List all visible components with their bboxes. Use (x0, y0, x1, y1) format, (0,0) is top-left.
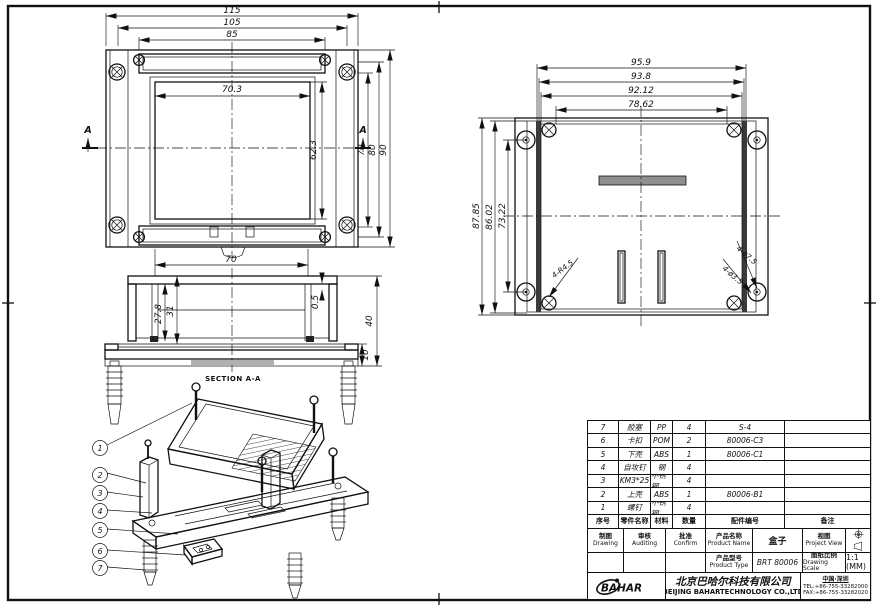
section-label: SECTION A-A (205, 375, 261, 383)
balloon-5: 5 (97, 526, 102, 535)
bom-cell: 不锈钢 (651, 502, 673, 515)
bom-cell (785, 475, 870, 488)
bom-cell: ABS (651, 488, 673, 501)
leader-corner-radius: 4-R4.5 (550, 258, 575, 280)
dim-w2: 93.8 (631, 72, 651, 82)
section-view: 27.8 31 0.5 40 10 SECTION A-A (105, 268, 382, 424)
bom-cell: PP (651, 421, 673, 434)
bom-cell: 4 (673, 502, 706, 515)
bom-cell (706, 461, 785, 474)
balloon-7: 7 (97, 564, 103, 573)
confirm-label: 批准 Confirm (666, 529, 706, 553)
drawing-sheet: A A 115 105 85 70.3 62.3 70 80 90 70 (0, 0, 878, 606)
clip-part (184, 539, 222, 564)
product-name-value: 盒子 (753, 529, 803, 553)
drawing-signature-cell (588, 553, 624, 573)
bom-cell (785, 502, 870, 515)
bom-cell: 卡扣 (619, 434, 651, 447)
screw-icon (727, 296, 741, 310)
bom-cell: 胶塞 (619, 421, 651, 434)
bom-cell: 自攻钉 (619, 461, 651, 474)
project-view-label: 视图 Project View (803, 529, 846, 553)
titleblock-row-2: 产品型号 Product Type BRT 80006 图纸比例 Drawing… (588, 553, 870, 573)
screw-icon (727, 123, 741, 137)
bom-cell: 4 (673, 461, 706, 474)
screw-icon (339, 64, 355, 80)
screw-icon (339, 217, 355, 233)
bom-cell: 螺钉 (619, 502, 651, 515)
wall-anchor-icon (106, 361, 123, 424)
bom-header: 数量 (673, 515, 706, 528)
dim-total-height: 40 (365, 315, 375, 327)
dim-overall-width: 115 (223, 6, 240, 16)
bom-cell: 2 (673, 434, 706, 447)
bom-cell: 不锈钢 (651, 475, 673, 488)
wall-anchor-icon (287, 553, 303, 598)
dim-inner-width: 70.3 (222, 85, 242, 95)
auditing-signature-cell (624, 553, 666, 573)
dim-gap: 0.5 (311, 295, 321, 310)
balloon-callouts: 1 2 3 4 5 6 7 (93, 403, 193, 576)
bom-cell: 4 (673, 475, 706, 488)
base-plate (133, 477, 368, 549)
cone-projection-icon (851, 541, 865, 552)
bom-header: 配件编号 (706, 515, 785, 528)
screw-icon (145, 440, 151, 459)
dim-bottom-width: 70 (225, 255, 237, 265)
bom-cell (785, 461, 870, 474)
dim-w4: 78.62 (628, 100, 654, 110)
corner-post (140, 457, 158, 518)
screw-icon (109, 217, 125, 233)
section-letter-right: A (358, 125, 366, 136)
section-letter-left: A (83, 125, 91, 136)
bom-cell: 1 (588, 502, 619, 515)
confirm-signature-cell (666, 553, 706, 573)
screw-icon (109, 64, 125, 80)
boss-icon (748, 131, 766, 149)
bom-cell: 80006-C1 (706, 448, 785, 461)
dim-base-height: 10 (361, 349, 371, 361)
dim-lid-width: 105 (223, 18, 240, 28)
dim-inner-height: 62.3 (309, 140, 319, 160)
balloon-1: 1 (97, 444, 102, 453)
bom-cell: 7 (588, 421, 619, 434)
product-name-label: 产品名称 Product Name (706, 529, 753, 553)
top-view: A A 115 105 85 70.3 62.3 70 80 90 70 (82, 6, 395, 276)
product-type-label: 产品型号 Product Type (706, 553, 753, 573)
bom-cell: 80006-C3 (706, 434, 785, 447)
balloon-3: 3 (97, 489, 102, 498)
exploded-view: 1 2 3 4 5 6 7 (93, 383, 369, 598)
dim-depth1: 27.8 (154, 304, 164, 324)
bom-cell: 80006-B1 (706, 488, 785, 501)
balloon-4: 4 (97, 507, 102, 516)
bom-cell: 4 (588, 461, 619, 474)
drawing-label: 制图 Drawing (588, 529, 624, 553)
vent-slot (618, 251, 625, 303)
bom-cell: ABS (651, 448, 673, 461)
bom-cell: 上壳 (619, 488, 651, 501)
dim-slot-width: 85 (226, 30, 238, 40)
product-type-value: BRT 80006 (753, 553, 803, 573)
bom-table: 7 胶塞 PP 4 S-4 6 卡扣 POM 2 80006-C3 5 下壳 A… (588, 421, 870, 529)
bom-cell: 6 (588, 434, 619, 447)
vent-slot (599, 176, 686, 185)
dim-h3: 73.22 (498, 203, 508, 229)
drawing-scale-value: 1:1 (MM) (846, 553, 870, 573)
bom-header: 零件名称 (619, 515, 651, 528)
bom-cell: 1 (673, 448, 706, 461)
bottom-view: 95.9 93.8 92.12 78.62 87.85 86.02 73.22 … (472, 58, 782, 327)
bom-cell: 3 (588, 475, 619, 488)
bom-cell: KM3*25 (619, 475, 651, 488)
balloon-6: 6 (97, 547, 102, 556)
dim-height-90: 90 (379, 144, 389, 156)
dim-h2: 86.02 (485, 204, 495, 230)
company-contact: 中国·深圳 TEL:+86-755-33282000 FAX:+86-755-3… (801, 573, 870, 601)
projection-symbols (846, 529, 870, 553)
bom-cell (785, 434, 870, 447)
company-name: 北京巴哈尔科技有限公司 BEIJING BAHARTECHNOLOGY CO.,… (666, 573, 801, 601)
auditing-label: 审核 Auditing (624, 529, 666, 553)
upper-shell (168, 399, 324, 489)
bom-header: 材料 (651, 515, 673, 528)
svg-text:BAHAR: BAHAR (601, 582, 642, 594)
company-logo: BAHAR (588, 573, 666, 601)
dim-depth2: 31 (166, 305, 176, 316)
screw-icon (329, 448, 337, 483)
screw-icon (542, 296, 556, 310)
bom-cell (785, 421, 870, 434)
balloon-2: 2 (97, 471, 102, 480)
bom-header: 序号 (588, 515, 619, 528)
third-angle-projection-icon (851, 529, 866, 540)
bom-cell: 2 (588, 488, 619, 501)
leader-hole-dia: 4-ø3.5 (721, 264, 745, 287)
title-block-and-bom: 7 胶塞 PP 4 S-4 6 卡扣 POM 2 80006-C3 5 下壳 A… (587, 420, 871, 600)
bahar-logo-icon: BAHAR (594, 576, 660, 598)
wall-anchor-icon (330, 498, 346, 540)
boss-icon (748, 283, 766, 301)
dim-height-70: 70 (357, 144, 367, 156)
company-row: BAHAR 北京巴哈尔科技有限公司 BEIJING BAHARTECHNOLOG… (588, 573, 870, 601)
screw-icon (542, 123, 556, 137)
screw-icon (310, 396, 318, 433)
bom-cell: 4 (673, 421, 706, 434)
bom-cell (706, 475, 785, 488)
bom-cell: 1 (673, 488, 706, 501)
bom-cell (785, 488, 870, 501)
dim-height-80: 80 (368, 144, 378, 156)
bom-cell: 下壳 (619, 448, 651, 461)
dim-w3: 92.12 (628, 86, 654, 96)
bom-header: 备注 (785, 515, 870, 528)
bom-cell: S-4 (706, 421, 785, 434)
bom-cell: POM (651, 434, 673, 447)
bom-cell: 5 (588, 448, 619, 461)
bom-cell (706, 502, 785, 515)
wall-anchor-icon (340, 361, 357, 424)
dim-h1: 87.85 (472, 203, 482, 229)
drawing-scale-label: 图纸比例 Drawing Scale (803, 553, 846, 573)
vent-slot (658, 251, 665, 303)
dim-w1: 95.9 (631, 58, 651, 68)
bom-cell: 钢 (651, 461, 673, 474)
bom-cell (785, 448, 870, 461)
titleblock-row-1: 制图 Drawing 审核 Auditing 批准 Confirm 产品名称 P… (588, 529, 870, 553)
